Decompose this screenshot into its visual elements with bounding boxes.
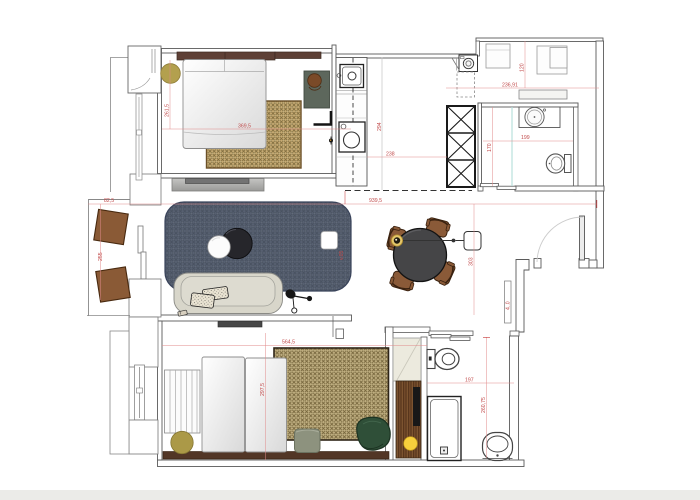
svg-text:260,75: 260,75 [481,397,487,413]
svg-text:939,5: 939,5 [369,198,382,204]
svg-text:255: 255 [98,252,104,261]
svg-text:170: 170 [487,143,493,152]
svg-text:369,5: 369,5 [238,124,251,130]
svg-text:82,5: 82,5 [104,198,114,204]
svg-text:v.05: v.05 [339,250,345,260]
svg-text:261,5: 261,5 [165,104,171,117]
svg-text:294: 294 [377,122,383,131]
svg-text:197: 197 [465,378,474,384]
svg-text:564,5: 564,5 [282,340,295,346]
svg-text:120: 120 [520,63,526,72]
svg-text:297,5: 297,5 [260,383,266,396]
svg-text:199: 199 [521,135,530,141]
svg-text:303: 303 [469,257,475,266]
svg-text:238: 238 [386,152,395,158]
svg-text:236,91: 236,91 [502,83,518,89]
svg-text:4..0: 4..0 [506,301,512,310]
